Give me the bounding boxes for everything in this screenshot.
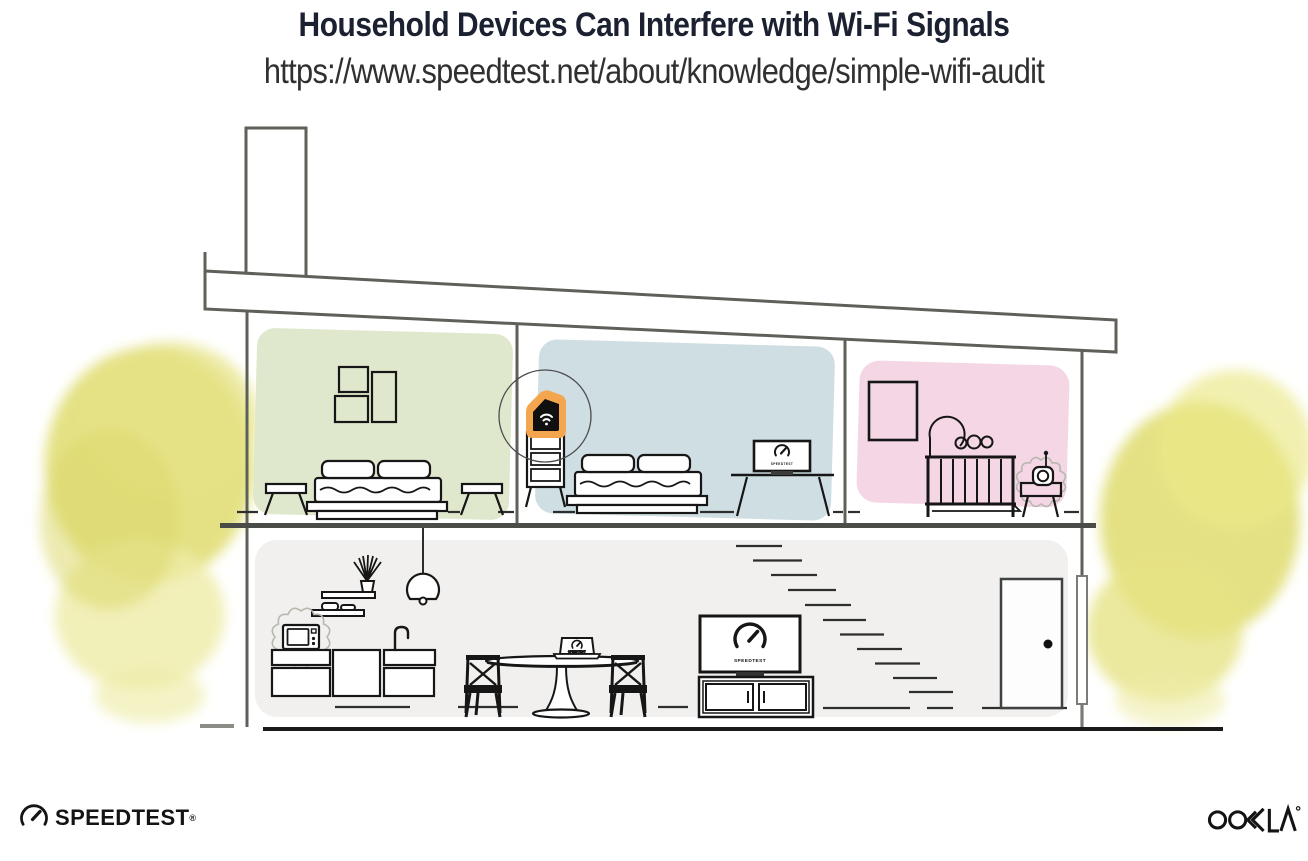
ground-line-left bbox=[200, 724, 234, 728]
foliage-right bbox=[1087, 370, 1308, 726]
house-cutaway-illustration: SPEEDTEST bbox=[0, 0, 1308, 861]
double-bed bbox=[567, 455, 707, 513]
ookla-logo bbox=[1206, 800, 1302, 836]
speedtest-logo: SPEEDTEST ® bbox=[20, 802, 196, 834]
infographic-page: Household Devices Can Interfere with Wi-… bbox=[0, 0, 1308, 861]
screen-label: SPEEDTEST bbox=[734, 658, 766, 664]
microwave bbox=[283, 625, 319, 652]
nursery-pink bbox=[848, 360, 1079, 517]
desktop-monitor: SPEEDTEST bbox=[754, 441, 810, 475]
speedtest-gauge-icon bbox=[20, 804, 48, 832]
front-door bbox=[1001, 579, 1062, 708]
registered-mark: ® bbox=[189, 813, 196, 823]
door-knob bbox=[1044, 640, 1053, 649]
downpipe bbox=[1077, 576, 1087, 727]
tv-console bbox=[699, 677, 813, 717]
double-bed bbox=[307, 461, 447, 519]
ground-line bbox=[263, 727, 1223, 731]
living-floor: SPEEDTEST SPEEDTEST bbox=[255, 528, 1087, 727]
speedtest-wordmark: SPEEDTEST bbox=[55, 805, 189, 831]
chimney bbox=[246, 128, 306, 276]
bedroom-blue: SPEEDTEST bbox=[499, 339, 843, 521]
laptop: SPEEDTEST bbox=[554, 638, 600, 659]
tv: SPEEDTEST bbox=[700, 616, 800, 676]
foliage-left bbox=[40, 342, 258, 723]
bedroom-green bbox=[237, 328, 514, 521]
screen-label: SPEEDTEST bbox=[771, 462, 794, 466]
floor-divider bbox=[220, 523, 1096, 528]
